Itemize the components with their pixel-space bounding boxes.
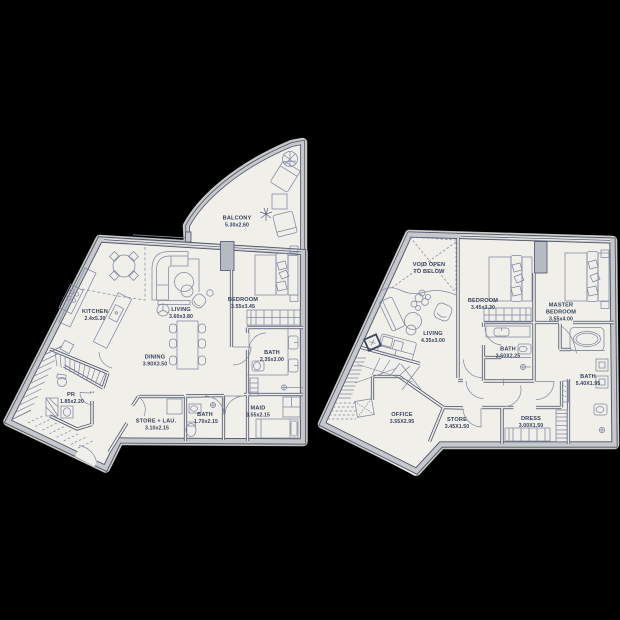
svg-text:5.30x2.60: 5.30x2.60: [225, 223, 249, 229]
svg-text:TO BELOW: TO BELOW: [413, 269, 445, 275]
svg-text:3.55x4.00: 3.55x4.00: [549, 317, 573, 323]
svg-text:3.45x3.30: 3.45x3.30: [471, 305, 495, 311]
svg-text:STORE + LAU.: STORE + LAU.: [136, 419, 177, 425]
svg-text:1.85x2.20: 1.85x2.20: [60, 399, 84, 405]
svg-text:STORE: STORE: [447, 417, 467, 423]
svg-text:BALCONY: BALCONY: [223, 216, 252, 222]
svg-text:BEDROOM: BEDROOM: [228, 297, 258, 303]
svg-text:BEDROOM: BEDROOM: [546, 310, 576, 316]
svg-text:BATH: BATH: [264, 350, 280, 356]
svg-text:PR: PR: [67, 392, 75, 398]
svg-text:2.4x5.30: 2.4x5.30: [85, 316, 106, 322]
svg-text:VOID OPEN: VOID OPEN: [413, 262, 445, 268]
svg-text:BATH: BATH: [580, 374, 596, 380]
svg-text:3.90X3.50: 3.90X3.50: [143, 362, 168, 368]
svg-text:3.10x2.15: 3.10x2.15: [145, 426, 169, 432]
svg-text:3.55X2.95: 3.55X2.95: [390, 419, 415, 425]
svg-text:BATH: BATH: [197, 412, 213, 418]
svg-text:BATH: BATH: [500, 347, 516, 353]
svg-text:BEDROOM: BEDROOM: [468, 298, 498, 304]
svg-text:3.55x2.15: 3.55x2.15: [246, 413, 270, 419]
svg-text:DINING: DINING: [145, 355, 165, 361]
svg-text:3.60x3.80: 3.60x3.80: [169, 314, 193, 320]
svg-text:4.35x3.00: 4.35x3.00: [421, 338, 445, 344]
svg-text:3.55x3.45: 3.55x3.45: [231, 304, 255, 310]
svg-text:2.35x3.00: 2.35x3.00: [260, 357, 284, 363]
svg-text:MAID: MAID: [251, 406, 266, 412]
svg-text:2.50X2.25: 2.50X2.25: [496, 354, 521, 360]
svg-text:KITCHEN: KITCHEN: [82, 309, 108, 315]
svg-text:DRESS: DRESS: [521, 416, 541, 422]
svg-text:3.45X1.50: 3.45X1.50: [445, 424, 470, 430]
svg-text:5.40X1.95: 5.40X1.95: [576, 381, 601, 387]
svg-text:1.70x2.15: 1.70x2.15: [194, 419, 218, 425]
svg-text:LIVING: LIVING: [423, 331, 443, 337]
svg-text:OFFICE: OFFICE: [391, 412, 413, 418]
svg-text:3.00X1.50: 3.00X1.50: [519, 423, 544, 429]
svg-text:MASTER: MASTER: [549, 303, 574, 309]
svg-text:LIVING: LIVING: [171, 307, 191, 313]
